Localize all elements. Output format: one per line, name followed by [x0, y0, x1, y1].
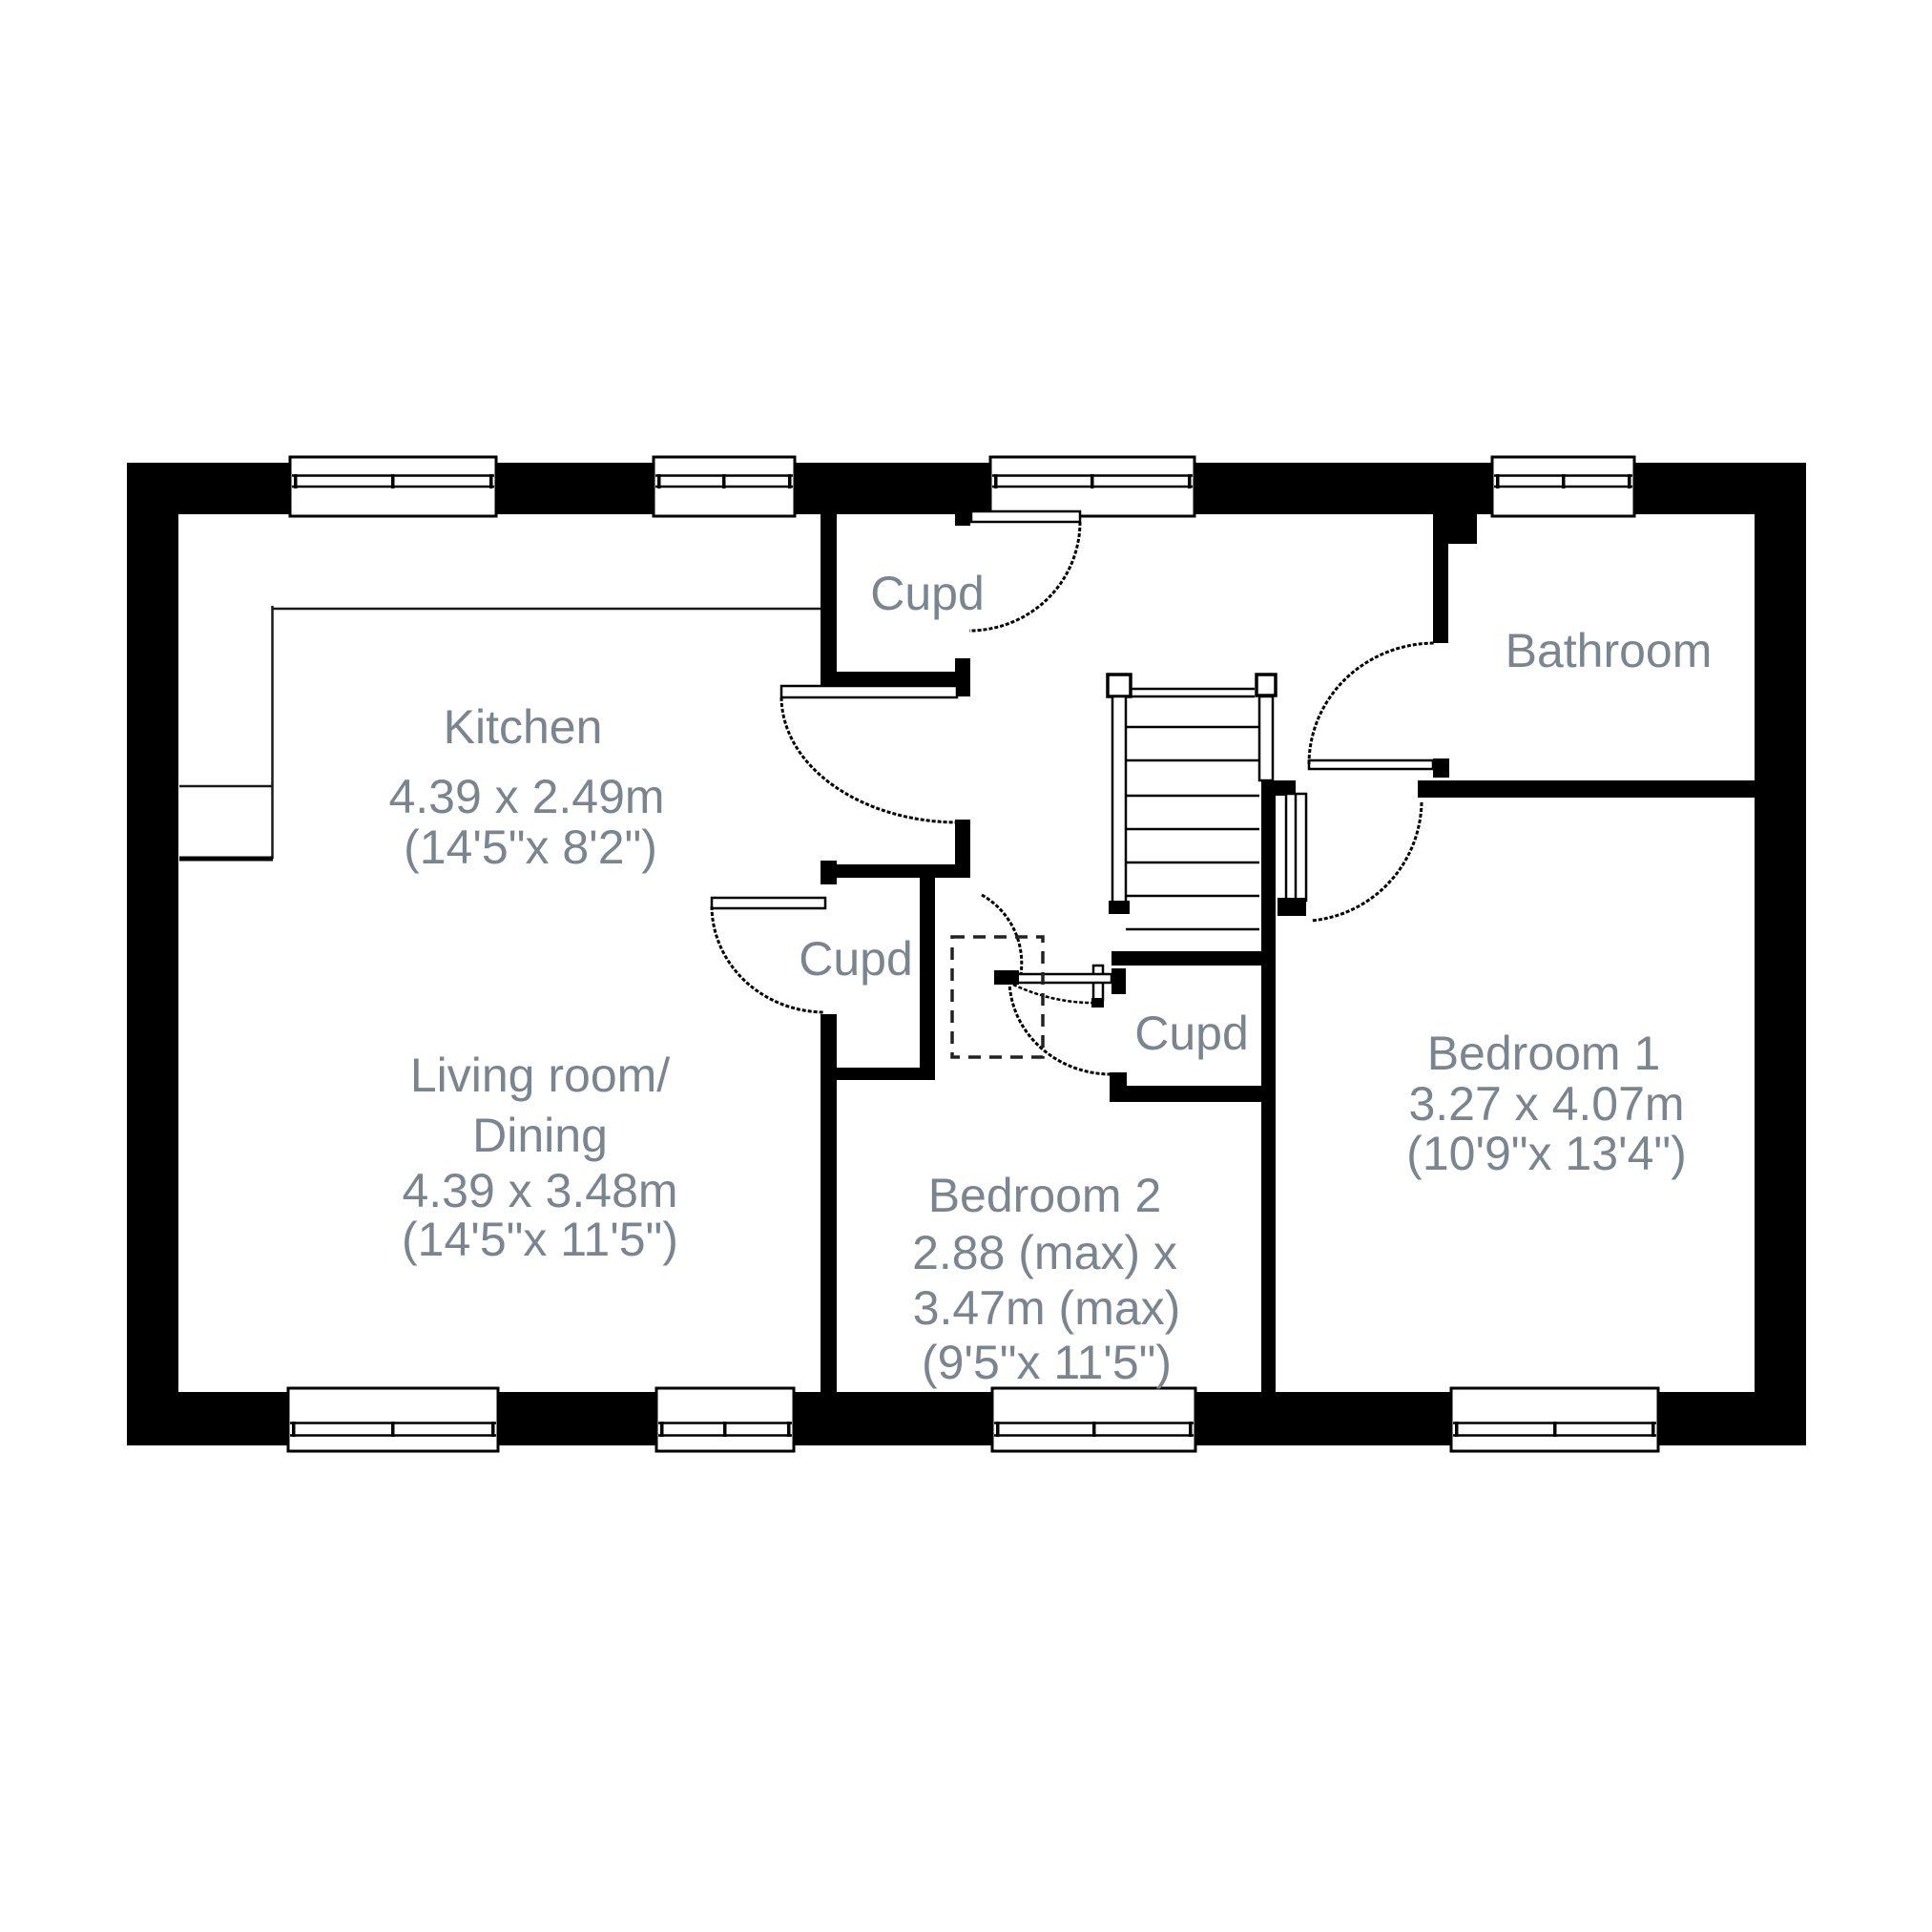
- svg-text:4.39 x 2.49m: 4.39 x 2.49m: [388, 770, 664, 823]
- svg-text:Kitchen: Kitchen: [444, 700, 603, 754]
- svg-text:(10'9"x 13'4"): (10'9"x 13'4"): [1406, 1127, 1687, 1180]
- svg-text:Cupd: Cupd: [799, 932, 913, 986]
- svg-text:(14'5"x 11'5"): (14'5"x 11'5"): [402, 1213, 678, 1266]
- svg-text:4.39 x 3.48m: 4.39 x 3.48m: [402, 1164, 677, 1217]
- svg-text:Cupd: Cupd: [1134, 1007, 1249, 1060]
- svg-text:3.47m (max): 3.47m (max): [913, 1281, 1181, 1335]
- svg-text:Bedroom 2: Bedroom 2: [928, 1169, 1162, 1222]
- svg-text:2.88 (max) x: 2.88 (max) x: [912, 1226, 1177, 1279]
- svg-text:Cupd: Cupd: [870, 567, 985, 620]
- svg-text:3.27 x 4.07m: 3.27 x 4.07m: [1408, 1077, 1684, 1131]
- svg-text:Bedroom 1: Bedroom 1: [1427, 1027, 1661, 1080]
- svg-text:Dining: Dining: [472, 1109, 608, 1162]
- svg-text:Living room/: Living room/: [410, 1049, 670, 1102]
- svg-text:(9'5"x 11'5"): (9'5"x 11'5"): [922, 1336, 1172, 1389]
- svg-text:Bathroom: Bathroom: [1506, 624, 1713, 677]
- svg-text:(14'5"x 8'2"): (14'5"x 8'2"): [404, 821, 657, 874]
